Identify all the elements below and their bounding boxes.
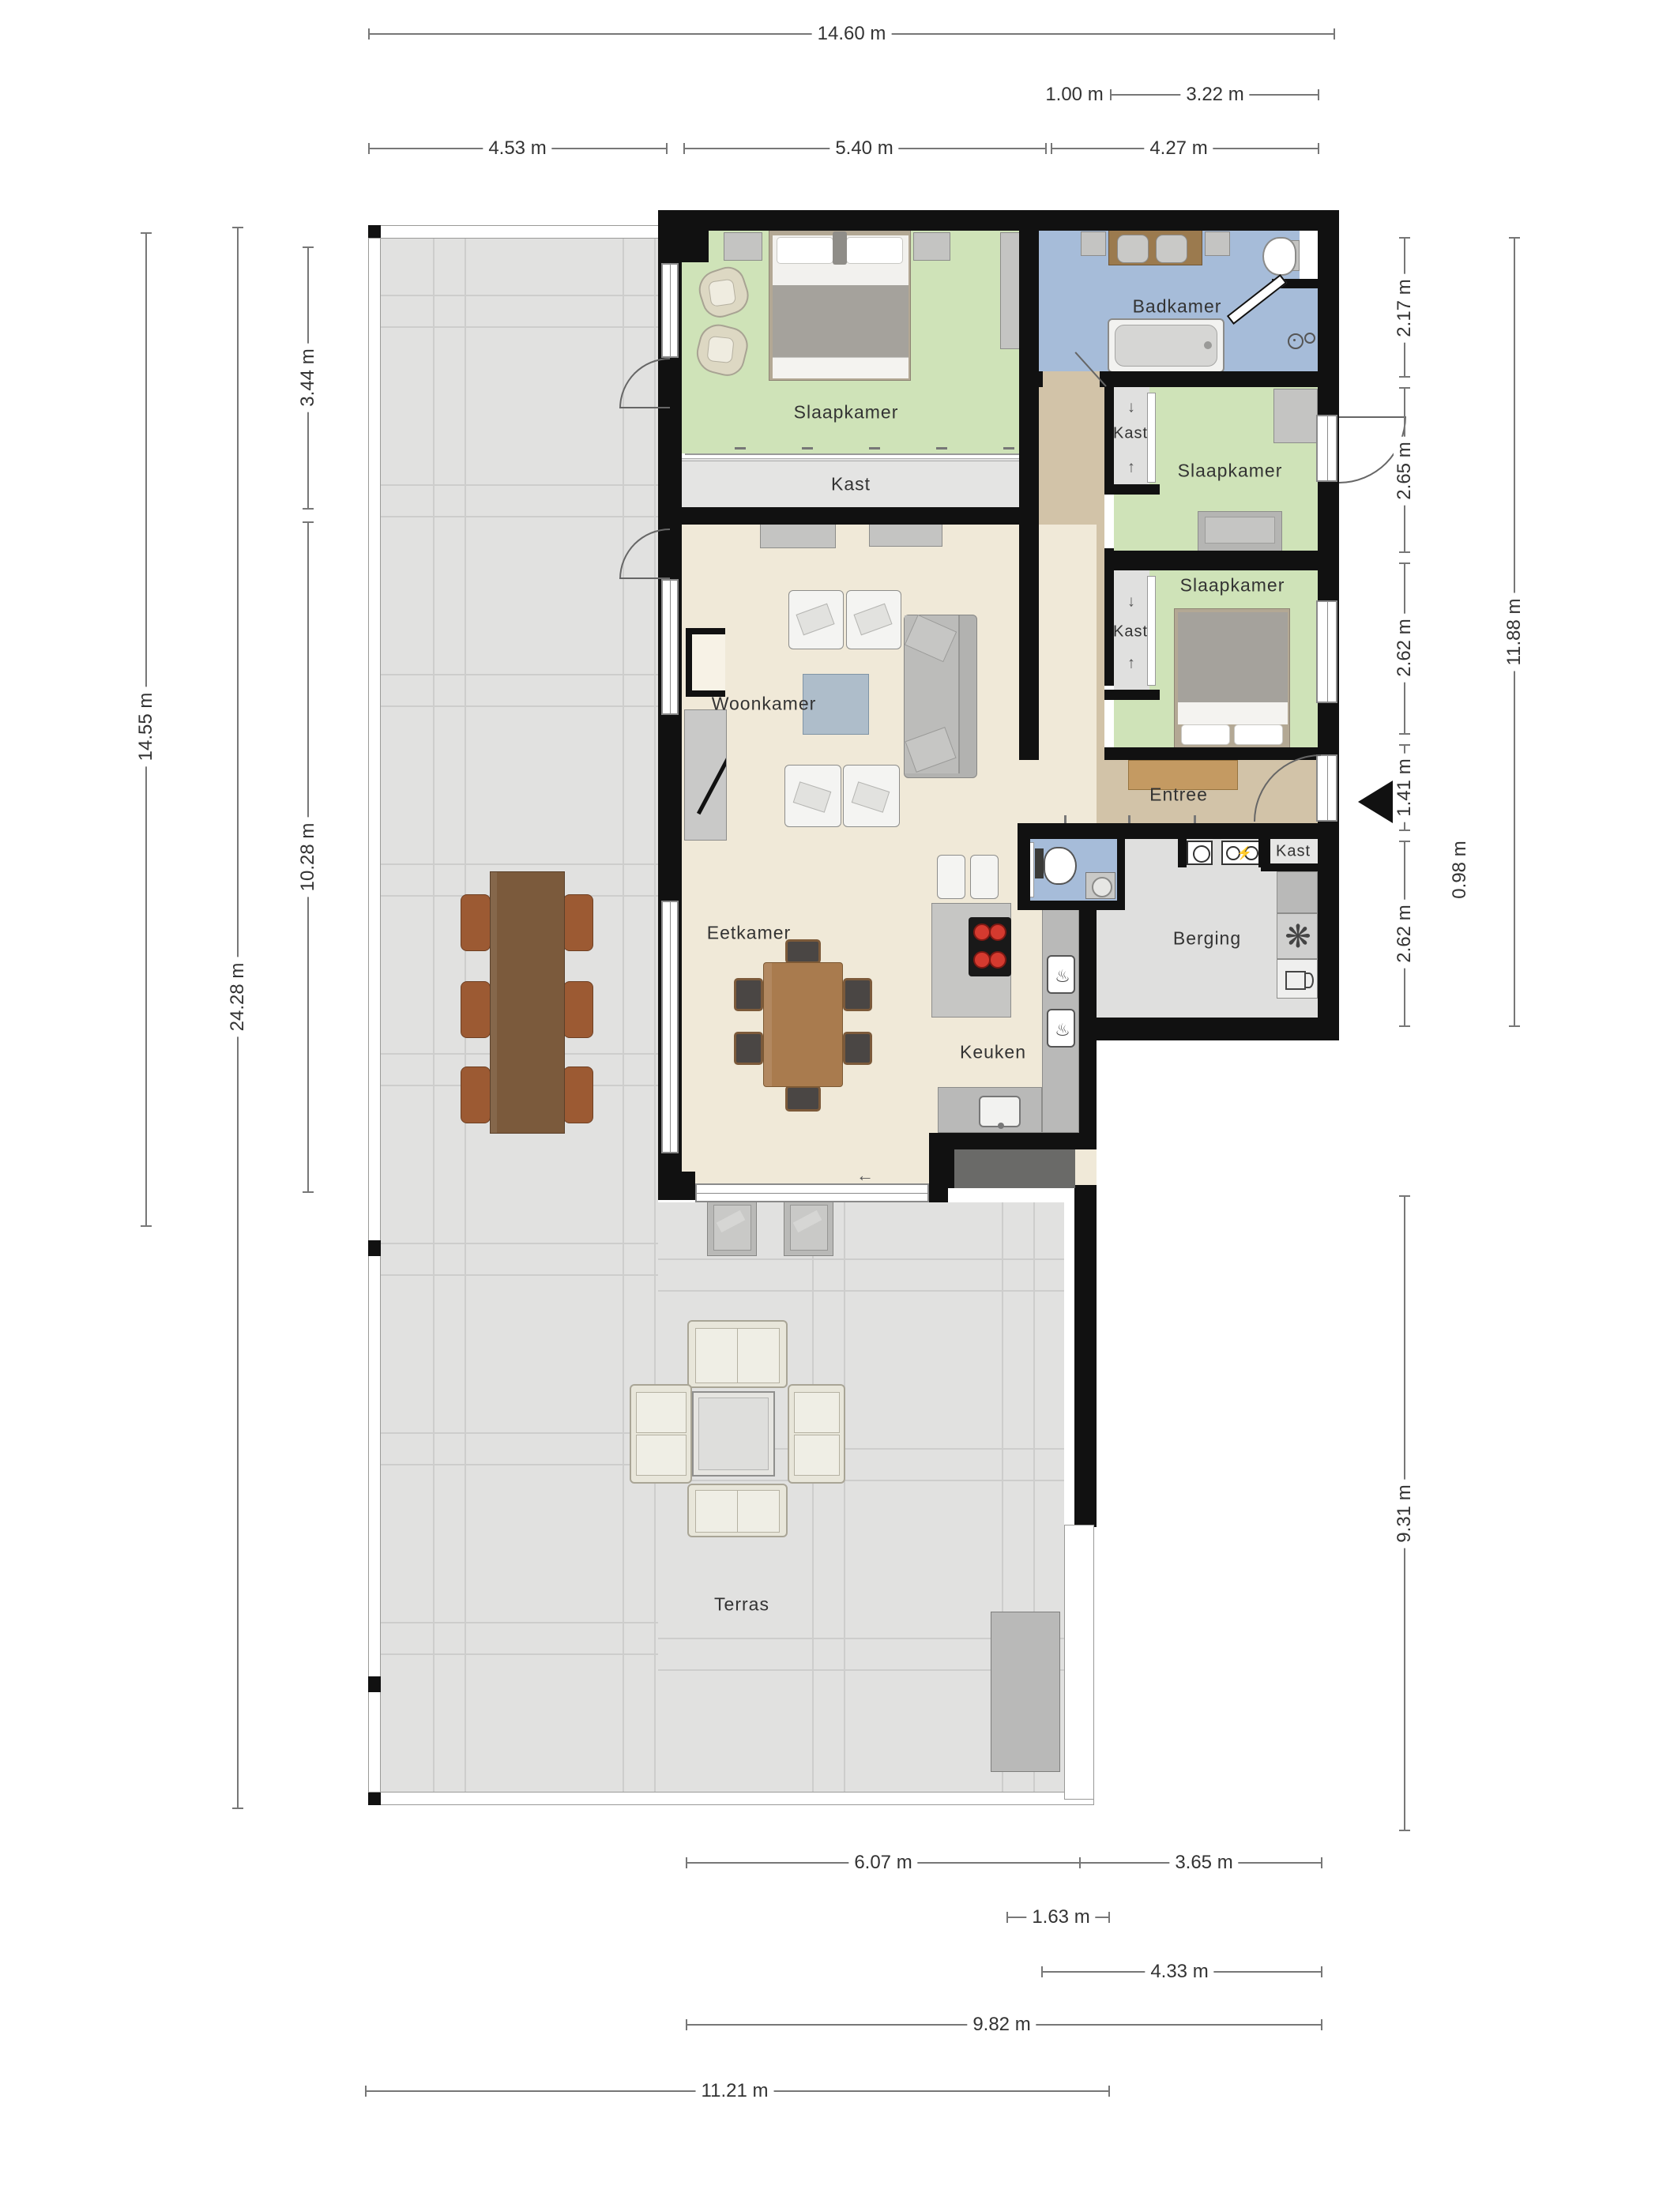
outdoor-dining-chair	[461, 981, 491, 1038]
dining-chair	[734, 1032, 763, 1065]
wall-nook-stub-left	[1178, 839, 1187, 867]
kast-entree-label: Kast	[1276, 843, 1311, 861]
closet-door	[1147, 576, 1156, 686]
wall-top	[664, 210, 1339, 231]
kast-slaapkamer1-label: Kast	[831, 474, 871, 495]
dim-apartment-depth: 14.55 m	[135, 687, 157, 767]
entree-label: Entree	[1149, 784, 1208, 806]
dim-bath-depth: 2.17 m	[1394, 273, 1416, 342]
dim-tick	[1399, 562, 1410, 564]
dim-lower-wing: 4.33 m	[1145, 1961, 1213, 1983]
dim-tick	[1509, 237, 1520, 239]
outdoor-dining-chair	[461, 894, 491, 951]
dim-tick	[1045, 143, 1047, 154]
ventilation-icon: ❋	[1285, 919, 1311, 955]
dim-tick	[686, 1857, 687, 1868]
shower-icon	[1288, 333, 1303, 349]
wardrobe	[1273, 389, 1318, 443]
woonkamer-label: Woonkamer	[712, 694, 817, 715]
dining-table	[763, 962, 843, 1087]
dim-tick	[1399, 1025, 1410, 1027]
bathtub	[1108, 318, 1224, 373]
kast-hal-onder-label: Kast	[1113, 623, 1148, 641]
balustrade-corner-bottom-left	[368, 1793, 381, 1805]
dim-tick	[683, 143, 685, 154]
dim-tick	[1006, 1912, 1008, 1923]
armchair	[788, 590, 844, 649]
dim-kitchen-exit: 1.63 m	[1026, 1906, 1095, 1928]
outdoor-dining-chair	[563, 894, 593, 951]
double-bed	[769, 225, 911, 381]
dim-terrace-right-depth: 9.31 m	[1394, 1479, 1416, 1548]
dim-bath-offset: 1.00 m	[1040, 84, 1108, 106]
oven: ♨	[1047, 1009, 1075, 1048]
lounge-sofa-bottom	[687, 1484, 788, 1537]
dim-tick	[1110, 89, 1112, 100]
dim-tick	[1399, 1830, 1410, 1831]
window-living-upper	[661, 579, 679, 715]
oven: ♨	[1047, 955, 1075, 994]
dim-berging-depth: 2.62 m	[1394, 899, 1416, 968]
slaapkamer2-label: Slaapkamer	[1178, 461, 1283, 482]
burner	[989, 951, 1006, 969]
sink	[1117, 235, 1149, 263]
wall-living-bottom-left-corner	[658, 1172, 695, 1200]
lounge-sofa-left	[630, 1384, 692, 1484]
dim-tick	[303, 508, 314, 510]
keuken-label: Keuken	[960, 1042, 1026, 1063]
window-bedroom1	[661, 263, 679, 358]
dryer: ⚡	[1221, 841, 1263, 865]
wall-wc-bottom	[1018, 901, 1125, 910]
double-bed	[1174, 608, 1290, 752]
nightstand	[913, 232, 950, 261]
dim-entree-depth: 1.41 m	[1394, 753, 1416, 822]
terras-label: Terras	[714, 1594, 769, 1616]
track-tick	[869, 447, 880, 450]
wall-closet2-bottom	[1104, 690, 1160, 700]
sliding-track	[685, 453, 1019, 455]
dim-living-depth: 10.28 m	[297, 818, 319, 897]
arrow-up-icon: ↑	[1127, 655, 1135, 673]
dim-tick	[368, 143, 370, 154]
lounge-sofa-top	[687, 1320, 788, 1388]
outdoor-dining-chair	[563, 1066, 593, 1123]
berging-label: Berging	[1173, 928, 1241, 950]
kast-hal-boven-label: Kast	[1113, 425, 1148, 443]
dim-tick	[1051, 143, 1052, 154]
dim-tick	[232, 227, 243, 228]
dim-tick	[303, 1191, 314, 1193]
dim-tick	[666, 143, 668, 154]
balustrade-joint-2	[368, 1676, 381, 1692]
dim-tick	[1399, 376, 1410, 378]
bath-cabinet	[1081, 231, 1106, 256]
towel-radiator-icon	[1304, 333, 1315, 344]
terrace-balustrade-bottom	[368, 1792, 1094, 1805]
door-leaf-bedroom1	[619, 407, 670, 408]
wall-living-east	[1019, 525, 1039, 760]
door-leaf-living	[619, 577, 670, 579]
dim-tick	[141, 232, 152, 234]
dim-tick	[1399, 237, 1410, 239]
wall-living-bottom-right-connector	[929, 1133, 948, 1202]
wall-wc-left	[1018, 823, 1030, 910]
wall-berging-bottom	[1079, 1018, 1339, 1040]
wc-sink	[1085, 872, 1115, 899]
burner	[973, 924, 991, 941]
dim-tick	[303, 246, 314, 248]
dim-tick	[1399, 829, 1410, 831]
lounge-sofa-right	[788, 1384, 845, 1484]
toilet	[1262, 237, 1300, 273]
dining-chair	[843, 1032, 872, 1065]
dim-tick	[1321, 1966, 1322, 1977]
dim-tick	[232, 1808, 243, 1809]
dim-tick	[1399, 744, 1410, 746]
wall-bathroom-bottom-a	[1019, 371, 1043, 387]
balustrade-joint-1	[368, 1240, 381, 1256]
dining-chair	[734, 978, 763, 1011]
terrace-balustrade-top	[368, 225, 664, 239]
wall-bedroom1-right	[1019, 210, 1039, 525]
dim-bedroom-depth: 3.44 m	[297, 343, 319, 412]
washbasin-counter	[1108, 230, 1202, 265]
tub-faucet	[1204, 341, 1212, 349]
track-tick	[735, 447, 746, 450]
armchair	[784, 765, 841, 827]
outdoor-dining-table	[490, 871, 565, 1134]
oven-heat-icon: ♨	[1055, 1020, 1070, 1040]
lightning-icon: ⚡	[1236, 845, 1252, 861]
sink	[1156, 235, 1187, 263]
dim-right-wing-width: 4.27 m	[1144, 137, 1213, 160]
dim-terrace-bottom: 11.21 m	[696, 2080, 774, 2102]
wall-bedroom3-bottom	[1104, 747, 1318, 760]
toilet	[1035, 847, 1074, 882]
dim-tick	[1399, 551, 1410, 553]
dim-apartment-bottom: 9.82 m	[967, 2014, 1036, 2036]
dim-tick	[1321, 1857, 1322, 1868]
terrace-armchair	[707, 1198, 757, 1256]
dim-tick	[303, 521, 314, 523]
dim-tick	[1509, 1025, 1520, 1027]
wall-entree-closet-left	[1261, 823, 1270, 871]
washing-machine	[1187, 841, 1213, 865]
burner	[973, 951, 991, 969]
dim-total-depth: 24.28 m	[227, 957, 249, 1037]
outdoor-dining-chair	[461, 1066, 491, 1123]
track-tick	[936, 447, 947, 450]
bar-stool	[970, 855, 999, 899]
dim-tick	[1334, 28, 1335, 39]
arrow-down-icon: ↓	[1127, 593, 1135, 611]
cooktop	[969, 917, 1011, 976]
badkamer-label: Badkamer	[1133, 296, 1222, 318]
dim-tick	[1399, 733, 1410, 735]
dim-living-width: 6.07 m	[848, 1852, 917, 1874]
dim-tick	[1399, 841, 1410, 842]
sliding-arrow-icon: ←	[856, 1165, 874, 1186]
boiler-unit	[1277, 959, 1318, 999]
dim-bath-width: 3.22 m	[1180, 84, 1249, 106]
sliding-door-living	[695, 1183, 929, 1202]
dim-bedroom-width: 5.40 m	[829, 137, 898, 160]
eetkamer-label: Eetkamer	[707, 923, 791, 944]
dim-tick	[1399, 1195, 1410, 1197]
entrance-arrow-icon	[1358, 781, 1393, 823]
burner	[989, 924, 1006, 941]
oven-heat-icon: ♨	[1055, 966, 1070, 987]
wall-bathroom-bottom-b	[1100, 371, 1318, 387]
dining-chair	[843, 978, 872, 1011]
dim-tick	[686, 2019, 687, 2030]
door-bedroom2-exterior	[1316, 415, 1337, 482]
terrace-balustrade-right	[1064, 1525, 1094, 1800]
bath-shaft	[1300, 231, 1318, 279]
meter-cupboard	[684, 709, 727, 841]
dim-overall-width: 14.60 m	[812, 23, 892, 45]
dim-tick	[1318, 89, 1319, 100]
wall-kitchen-bottom	[938, 1133, 1097, 1149]
sofa	[904, 615, 977, 778]
dim-tick	[1318, 143, 1319, 154]
dim-tick	[368, 28, 370, 39]
door-leaf-bedroom2	[1339, 416, 1406, 418]
terrace-right-wall	[1074, 1149, 1097, 1527]
outdoor-dining-chair	[563, 981, 593, 1038]
wall-hall-right-b	[1104, 548, 1114, 686]
dining-chair	[785, 1085, 821, 1112]
kitchen-sink	[979, 1096, 1021, 1127]
dim-tick	[1041, 1966, 1043, 1977]
dim-landing-depth: 0.98 m	[1449, 835, 1471, 904]
nightstand	[724, 232, 762, 261]
window-living-lower	[661, 901, 679, 1153]
dim-terrace-top-width: 4.53 m	[483, 137, 551, 160]
fireplace-niche	[686, 628, 725, 697]
dim-tick	[1399, 387, 1410, 389]
dim-berging-width: 3.65 m	[1169, 1852, 1238, 1874]
dim-bedroom3-depth: 2.62 m	[1394, 613, 1416, 682]
wall-entree-closet-bottom	[1270, 863, 1318, 871]
dim-tick	[365, 2086, 367, 2097]
kitchen-step-mat	[954, 1149, 1075, 1188]
terrace-armchair	[784, 1198, 833, 1256]
slaapkamer1-label: Slaapkamer	[794, 402, 899, 423]
balustrade-corner-top-left	[368, 225, 381, 238]
wall-entree-bottom	[1018, 823, 1339, 839]
wall-closet1-bottom	[1104, 484, 1160, 495]
dim-tick	[141, 1225, 152, 1227]
wall-wc-right	[1117, 823, 1125, 910]
bar-stool	[937, 855, 965, 899]
track-tick	[802, 447, 813, 450]
dim-tick	[1108, 2086, 1110, 2097]
armchair	[846, 590, 901, 649]
track-tick	[1003, 447, 1014, 450]
lounge-table	[692, 1391, 775, 1477]
bath-cabinet	[1205, 231, 1230, 256]
desk	[1198, 511, 1282, 552]
arrow-up-icon: ↑	[1127, 459, 1135, 477]
window-bedroom3	[1316, 600, 1337, 703]
slaapkamer3-label: Slaapkamer	[1180, 575, 1285, 596]
arrow-down-icon: ↓	[1127, 399, 1135, 417]
dim-tick	[1108, 1912, 1110, 1923]
berging-cabinet	[1277, 871, 1318, 913]
wall-bedroom2-3	[1114, 551, 1318, 570]
dim-bedroom2-depth: 2.65 m	[1394, 436, 1416, 505]
closet-door	[1147, 393, 1156, 483]
terrace-balustrade-left	[368, 225, 381, 1805]
wall-bedroom1-closet-bottom	[658, 507, 1019, 525]
dim-wing-total-depth: 11.88 m	[1503, 593, 1525, 671]
armchair	[843, 765, 900, 827]
dim-tick	[1321, 2019, 1322, 2030]
terrace-planter	[991, 1612, 1060, 1772]
ventilation-unit: ❋	[1277, 913, 1318, 959]
